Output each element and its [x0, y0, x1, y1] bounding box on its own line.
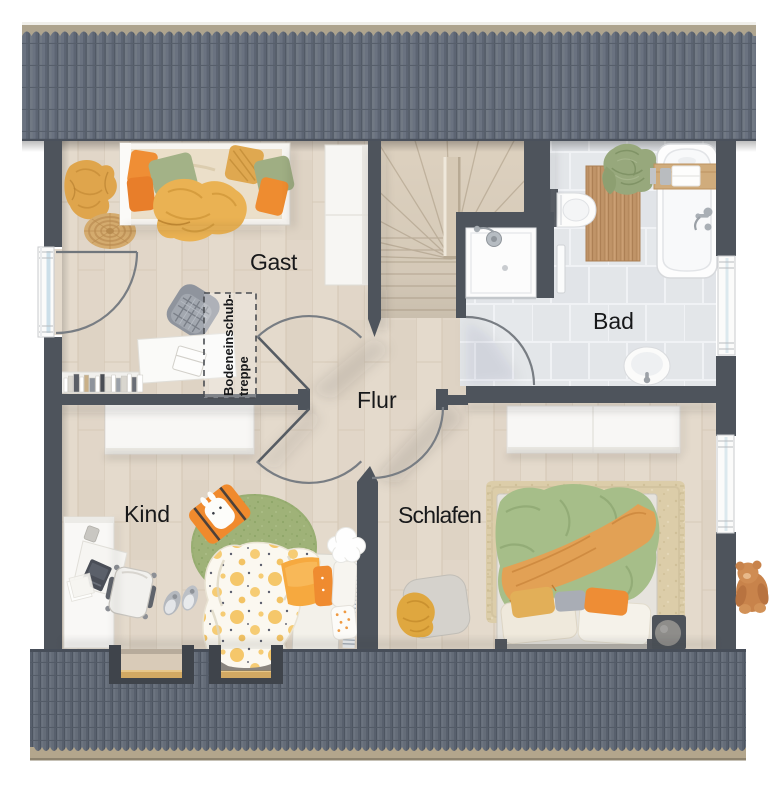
svg-text:treppe: treppe	[236, 356, 251, 396]
svg-text:Schlafen: Schlafen	[398, 502, 481, 528]
svg-text:Flur: Flur	[357, 387, 397, 413]
svg-text:Kind: Kind	[124, 501, 170, 527]
svg-text:Bad: Bad	[593, 308, 634, 334]
svg-text:Gast: Gast	[250, 249, 298, 275]
svg-text:Bodeneinschub-: Bodeneinschub-	[221, 294, 236, 396]
